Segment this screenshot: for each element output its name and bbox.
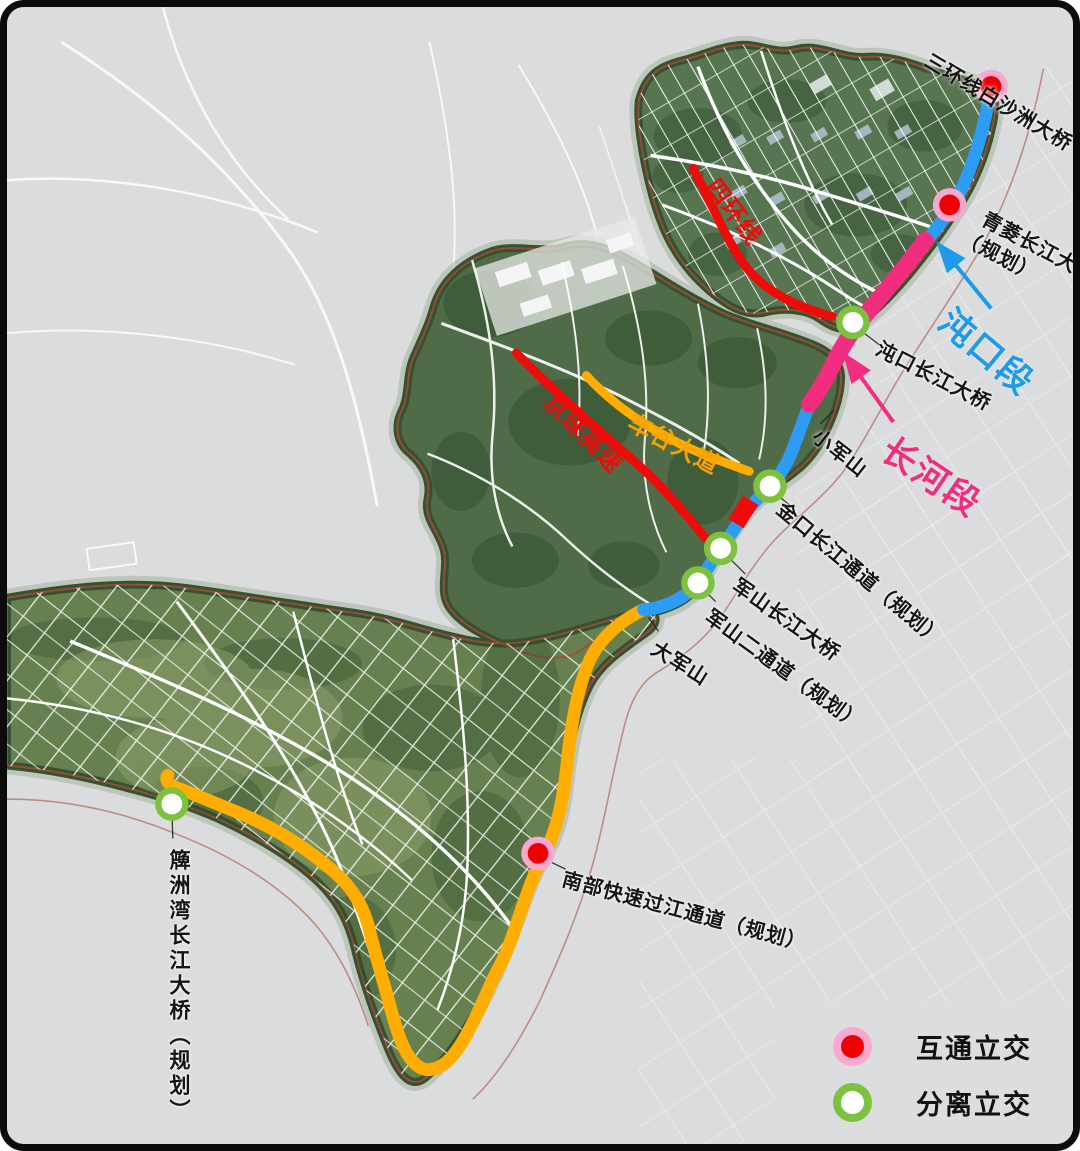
label-paizhouwan-bridge: 簰洲湾长江大桥（规划） xyxy=(163,849,193,1109)
legend-separation-label: 分离立交 xyxy=(916,1083,1032,1122)
separation-marker xyxy=(681,566,715,600)
legend: 互通立交 分离立交 xyxy=(833,1027,1032,1121)
separation-marker xyxy=(704,532,738,566)
legend-interchange-label: 互通立交 xyxy=(916,1027,1032,1066)
legend-item-interchange: 互通立交 xyxy=(833,1027,1032,1065)
separation-marker xyxy=(753,469,787,503)
interchange-marker xyxy=(933,188,967,222)
map-screenshot-frame: 三环线白沙洲大桥 青菱长江大桥 （规划） 沌口段 沌口长江大桥 长河段 小军山 … xyxy=(0,0,1080,1151)
interchange-legend-marker xyxy=(833,1027,872,1066)
legend-item-separation: 分离立交 xyxy=(833,1083,1032,1121)
interchange-marker xyxy=(521,837,555,871)
separation-legend-marker xyxy=(833,1083,872,1122)
separation-marker xyxy=(155,787,189,821)
separation-marker xyxy=(836,306,870,340)
